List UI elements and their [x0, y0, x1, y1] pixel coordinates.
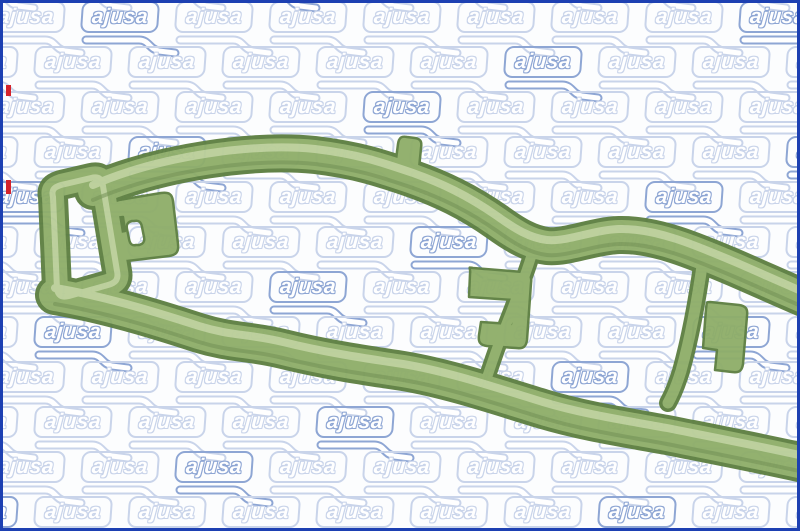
gasket-product-image — [3, 3, 800, 531]
gasket-right-castle-tab — [703, 302, 747, 372]
product-photo-frame: ajusaajusaajusaajusaajusaajusaajusaajusa… — [0, 0, 800, 531]
